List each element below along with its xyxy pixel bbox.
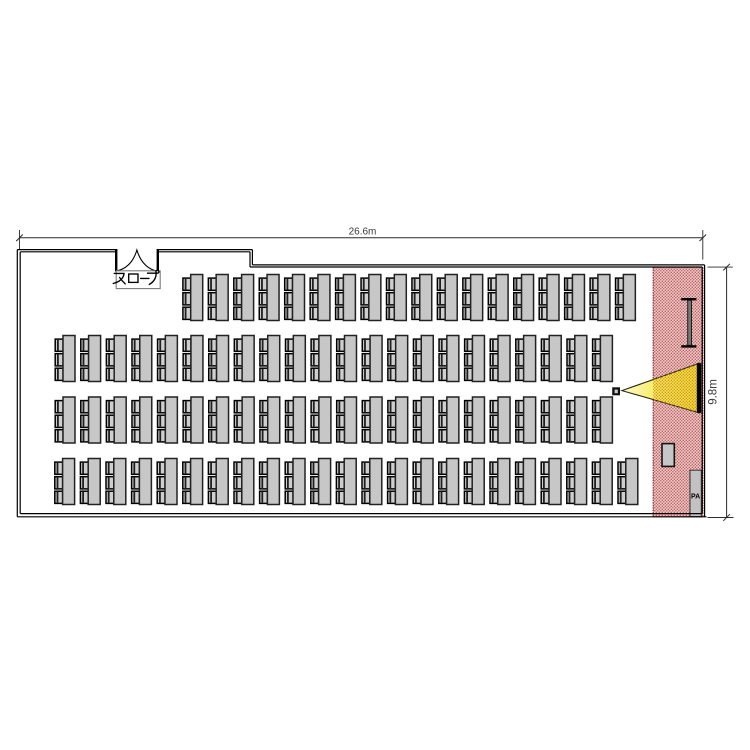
svg-text:26.6m: 26.6m [349, 227, 377, 238]
svg-text:9.8m: 9.8m [708, 379, 720, 405]
svg-text:PA: PA [691, 493, 700, 500]
